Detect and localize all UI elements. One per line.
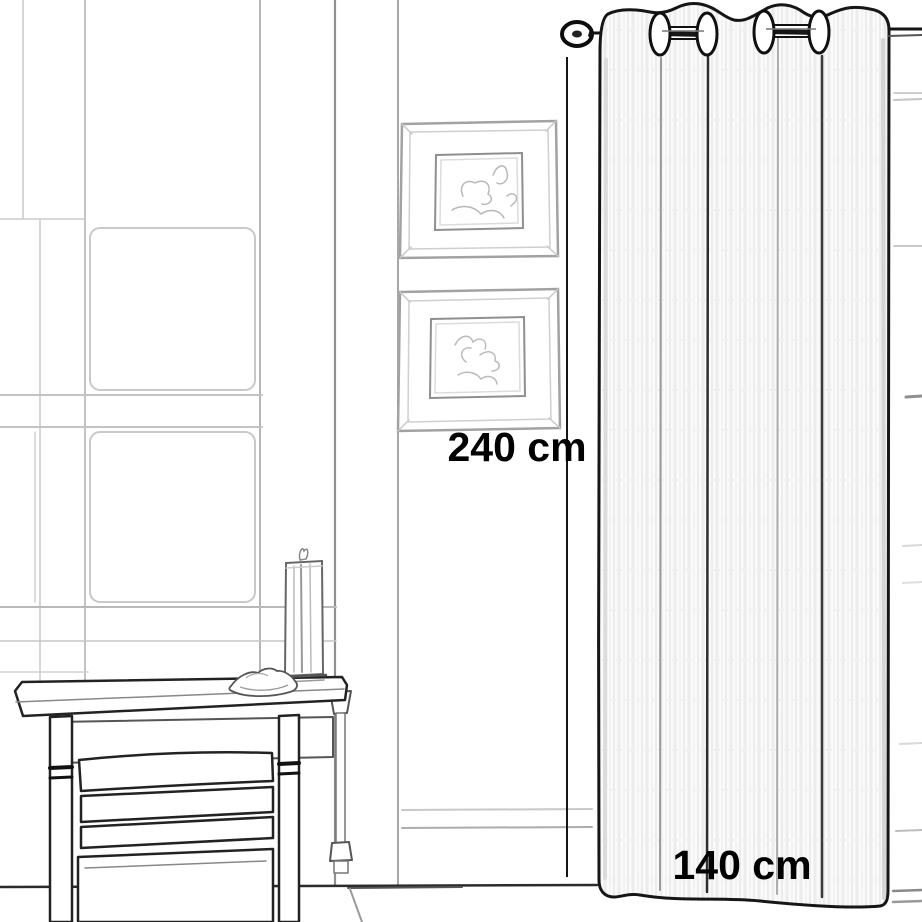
picture-frame-bottom: [398, 289, 560, 431]
grommet-ring: [809, 11, 829, 53]
vase: [283, 549, 326, 682]
picture-frame-top: [400, 121, 558, 258]
grommet-ring: [697, 13, 717, 55]
height-dimension-label: 240 cm: [444, 426, 590, 468]
width-dimension-label: 140 cm: [669, 844, 815, 886]
candle-stick: [301, 565, 302, 672]
chair-back-slats: [78, 752, 273, 922]
rod-finial: [562, 22, 594, 46]
grommet-ring: [650, 13, 670, 55]
curtain-panel: [599, 4, 889, 908]
grommet-ring: [754, 11, 774, 53]
candle-flame: [300, 549, 308, 560]
product-sketch-scene: 240 cm 140 cm: [0, 0, 922, 922]
